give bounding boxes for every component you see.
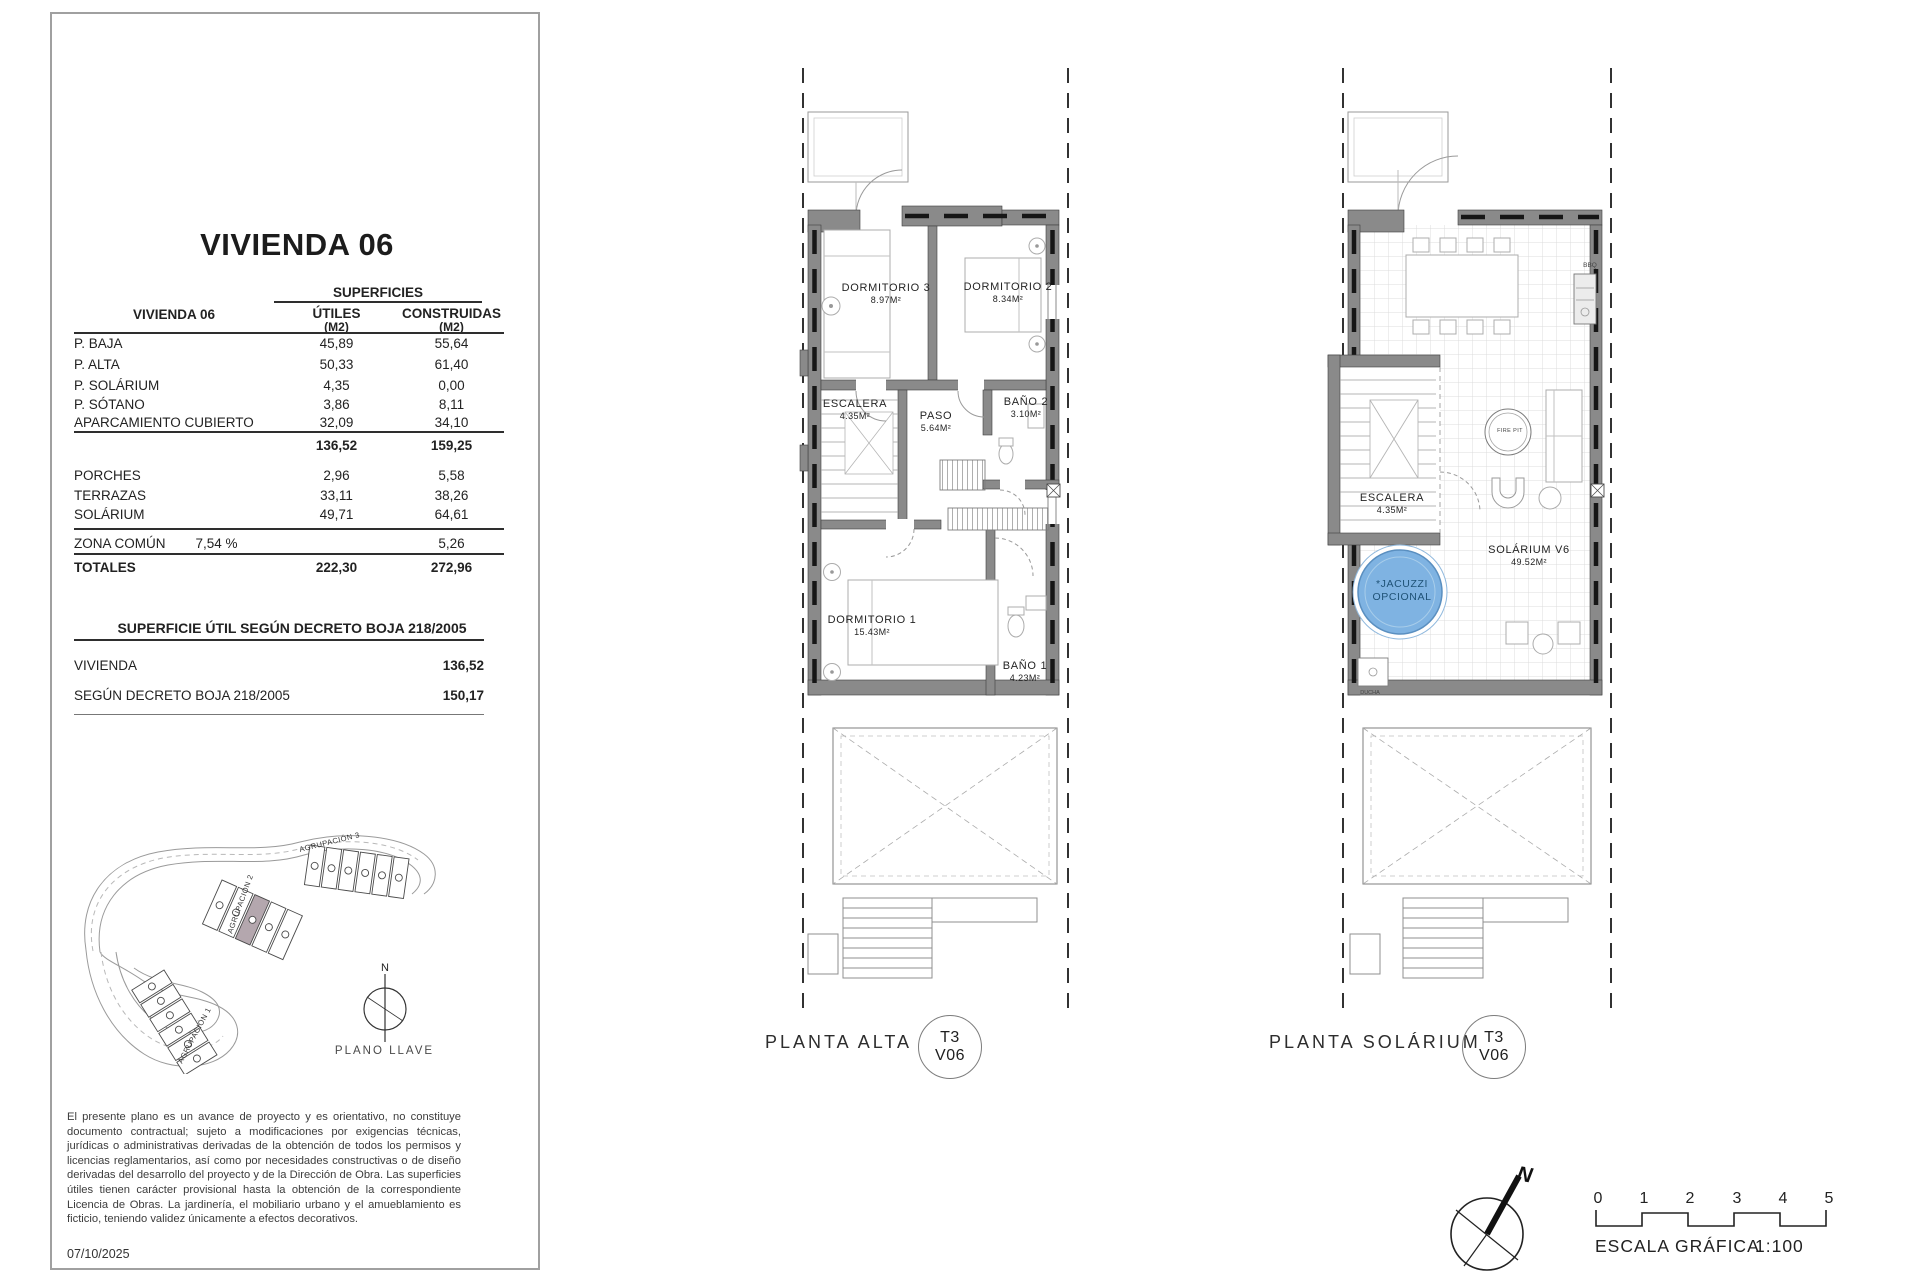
room-name: ESCALERA [785, 398, 925, 410]
jacuzzi-label: *JACUZZI OPCIONAL [1332, 578, 1472, 604]
divider [274, 301, 482, 303]
plan-date: 07/10/2025 [67, 1247, 130, 1261]
row-utiles: 50,33 [274, 357, 399, 372]
room-label-dormitorio1: DORMITORIO 1 15.43M² [802, 614, 942, 638]
totals-utiles: 222,30 [274, 560, 399, 575]
jacuzzi-line1: *JACUZZI [1376, 578, 1428, 590]
shaft-box [1047, 484, 1060, 497]
table-totals-row: TOTALES 222,30 272,96 [74, 560, 504, 575]
col-header-utiles: ÚTILES [274, 306, 399, 321]
room-area: 4.35M² [1322, 504, 1462, 516]
bbq-unit [1574, 274, 1596, 324]
room-label-bano1: BAÑO 1 4.23M² [955, 660, 1095, 684]
room-name: DORMITORIO 1 [802, 614, 942, 626]
table-row: P. SOLÁRIUM 4,35 0,00 [74, 378, 504, 393]
planta-alta-caption: PLANTA ALTA [765, 1032, 912, 1053]
divider [74, 332, 504, 334]
table-row: P. SÓTANO 3,86 8,11 [74, 397, 504, 412]
table-zona-row: ZONA COMÚN7,54 % 5,26 [74, 536, 504, 551]
scale-ratio: 1:100 [1755, 1236, 1804, 1257]
scale-caption: ESCALA GRÁFICA [1595, 1236, 1760, 1257]
entrance-canopy [808, 112, 908, 216]
page-title: VIVIENDA 06 [172, 227, 422, 263]
decreto-label: VIVIENDA [74, 658, 424, 673]
badge-type: T3 [1484, 1029, 1504, 1047]
decreto-row: VIVIENDA 136,52 [74, 658, 484, 673]
room-area: 8.34M² [938, 293, 1078, 305]
scale-tick: 4 [1772, 1190, 1794, 1208]
room-area: 15.43M² [802, 626, 942, 638]
keyplan-caption: PLANO LLAVE [322, 1045, 447, 1057]
shower-ducha [1358, 658, 1388, 686]
subtotal-utiles: 136,52 [274, 438, 399, 453]
decreto-label: SEGÚN DECRETO BOJA 218/2005 [74, 688, 424, 703]
site-units-agrupacion2 [202, 880, 302, 960]
table-group-header: SUPERFICIES [274, 285, 482, 300]
room-area: 8.97M² [816, 294, 956, 306]
planta-alta-badge: T3 V06 [918, 1015, 982, 1079]
row-label: APARCAMIENTO CUBIERTO [74, 415, 274, 430]
closets [940, 460, 1048, 530]
room-area: 5.64M² [866, 422, 1006, 434]
keyplan-north-label: N [381, 962, 389, 974]
table-row: SOLÁRIUM 49,71 64,61 [74, 507, 504, 522]
row-construidas: 5,58 [399, 468, 504, 483]
site-key-plan: AGRUPACIÓN 3 AGRUPACIÓN 2 AGRUPACIÓN 1 N [72, 822, 452, 1074]
row-utiles: 45,89 [274, 336, 399, 351]
room-area: 3.10M² [956, 408, 1096, 420]
room-label-solarium: SOLÁRIUM V6 49.52M² [1459, 544, 1599, 568]
row-construidas: 38,26 [399, 488, 504, 503]
info-panel: VIVIENDA 06 SUPERFICIES VIVIENDA 06 ÚTIL… [50, 12, 540, 1270]
row-construidas: 34,10 [399, 415, 504, 430]
fire-pit-label: FIRE PIT [1482, 428, 1538, 434]
table-row-header: VIVIENDA 06 [74, 307, 274, 322]
table-row: TERRAZAS 33,11 38,26 [74, 488, 504, 503]
lounge-sofa [1546, 390, 1582, 482]
lower-stairs [1350, 898, 1568, 978]
totals-construidas: 272,96 [399, 560, 504, 575]
table-row: PORCHES 2,96 5,58 [74, 468, 504, 483]
divider [74, 639, 484, 641]
decreto-row: SEGÚN DECRETO BOJA 218/2005 150,17 [74, 688, 484, 703]
badge-unit: V06 [1479, 1047, 1509, 1065]
room-label-bano2: BAÑO 2 3.10M² [956, 396, 1096, 420]
lower-terrace [833, 728, 1057, 884]
scale-tick: 0 [1587, 1190, 1609, 1208]
room-label-escalera-solarium: ESCALERA 4.35M² [1322, 492, 1462, 516]
divider [74, 714, 484, 715]
planta-solarium-caption: PLANTA SOLÁRIUM [1269, 1032, 1481, 1053]
ducha-label: DUCHA [1348, 690, 1392, 696]
scale-tick: 1 [1633, 1190, 1655, 1208]
shaft-box [1591, 484, 1604, 497]
decreto-value: 150,17 [424, 688, 484, 703]
subtotal-construidas: 159,25 [399, 438, 504, 453]
row-utiles: 32,09 [274, 415, 399, 430]
table-row: P. ALTA 50,33 61,40 [74, 357, 504, 372]
bathroom1-fixtures [1008, 596, 1046, 637]
scale-bar [1594, 1208, 1832, 1230]
room-area: 4.23M² [955, 672, 1095, 684]
lower-stairs [808, 898, 1037, 978]
badge-unit: V06 [935, 1047, 965, 1065]
bbq-label: BBQ [1572, 262, 1608, 269]
zona-percent: 7,54 % [196, 536, 238, 551]
row-construidas: 61,40 [399, 357, 504, 372]
planta-solarium-badge: T3 V06 [1462, 1015, 1526, 1079]
compass-north-label: N [1515, 1162, 1535, 1187]
divider [74, 553, 504, 555]
row-construidas: 64,61 [399, 507, 504, 522]
col-header-construidas: CONSTRUIDAS [399, 306, 504, 321]
row-utiles: 4,35 [274, 378, 399, 393]
room-label-dormitorio2: DORMITORIO 2 8.34M² [938, 281, 1078, 305]
decreto-value: 136,52 [424, 658, 484, 673]
row-label: SOLÁRIUM [74, 507, 274, 522]
row-label: P. BAJA [74, 336, 274, 351]
decreto-title: SUPERFICIE ÚTIL SEGÚN DECRETO BOJA 218/2… [92, 620, 492, 636]
row-construidas: 55,64 [399, 336, 504, 351]
planta-solarium-drawing [1318, 60, 1623, 1020]
scale-tick: 5 [1818, 1190, 1840, 1208]
room-name: BAÑO 1 [955, 660, 1095, 672]
room-name: BAÑO 2 [956, 396, 1096, 408]
compass-icon: N [1442, 1158, 1542, 1276]
room-area: 49.52M² [1459, 556, 1599, 568]
scale-tick: 3 [1726, 1190, 1748, 1208]
row-utiles: 3,86 [274, 397, 399, 412]
room-name: DORMITORIO 3 [816, 282, 956, 294]
row-label: TERRAZAS [74, 488, 274, 503]
table-row: P. BAJA 45,89 55,64 [74, 336, 504, 351]
zona-construidas: 5,26 [399, 536, 504, 551]
row-label: P. ALTA [74, 357, 274, 372]
divider [74, 528, 504, 530]
row-label: PORCHES [74, 468, 274, 483]
row-construidas: 8,11 [399, 397, 504, 412]
row-construidas: 0,00 [399, 378, 504, 393]
room-label-dormitorio3: DORMITORIO 3 8.97M² [816, 282, 956, 306]
keyplan-compass-icon [364, 974, 406, 1042]
table-subtotal-row: 136,52 159,25 [74, 438, 504, 453]
row-utiles: 33,11 [274, 488, 399, 503]
disclaimer-text: El presente plano es un avance de proyec… [67, 1110, 461, 1227]
divider [74, 431, 504, 433]
row-label: ZONA COMÚN7,54 % [74, 536, 274, 551]
row-utiles: 2,96 [274, 468, 399, 483]
zona-label: ZONA COMÚN [74, 536, 166, 551]
badge-type: T3 [940, 1029, 960, 1047]
room-name: SOLÁRIUM V6 [1459, 544, 1599, 556]
lower-terrace [1363, 728, 1591, 884]
row-label: P. SOLÁRIUM [74, 378, 274, 393]
entrance-canopy [1348, 112, 1458, 216]
table-row: APARCAMIENTO CUBIERTO 32,09 34,10 [74, 415, 504, 430]
jacuzzi-line2: OPCIONAL [1372, 591, 1431, 603]
room-name: ESCALERA [1322, 492, 1462, 504]
totals-label: TOTALES [74, 560, 274, 575]
planta-alta-drawing [790, 60, 1080, 1020]
site-units-agrupacion3 [304, 845, 409, 899]
row-label: P. SÓTANO [74, 397, 274, 412]
room-name: DORMITORIO 2 [938, 281, 1078, 293]
scale-tick: 2 [1679, 1190, 1701, 1208]
row-utiles: 49,71 [274, 507, 399, 522]
